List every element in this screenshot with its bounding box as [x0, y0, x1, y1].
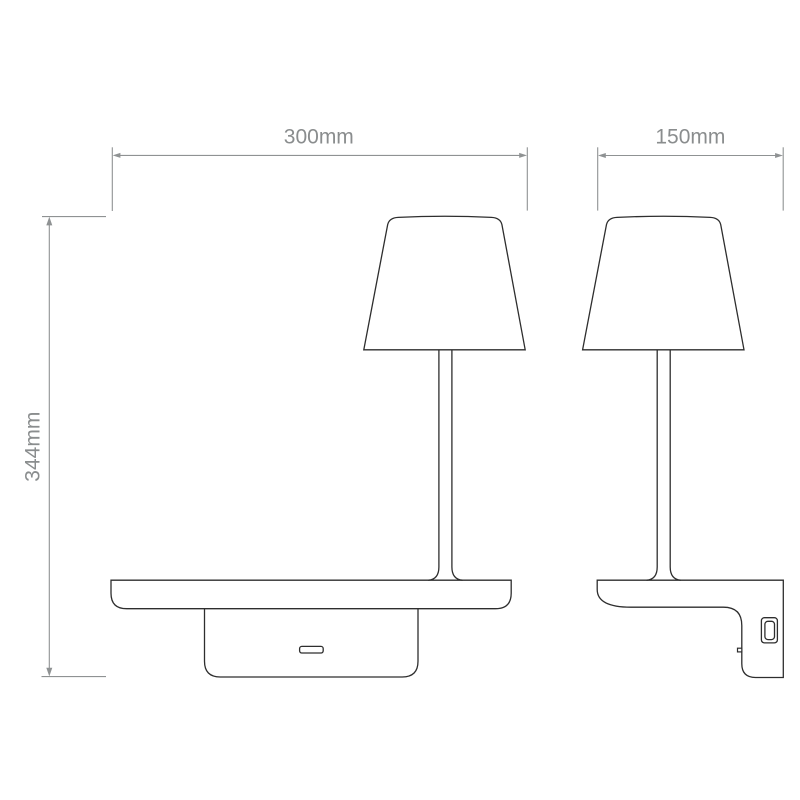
svg-text:150mm: 150mm [655, 125, 725, 148]
svg-text:300mm: 300mm [284, 125, 354, 148]
svg-text:344mm: 344mm [22, 412, 45, 482]
